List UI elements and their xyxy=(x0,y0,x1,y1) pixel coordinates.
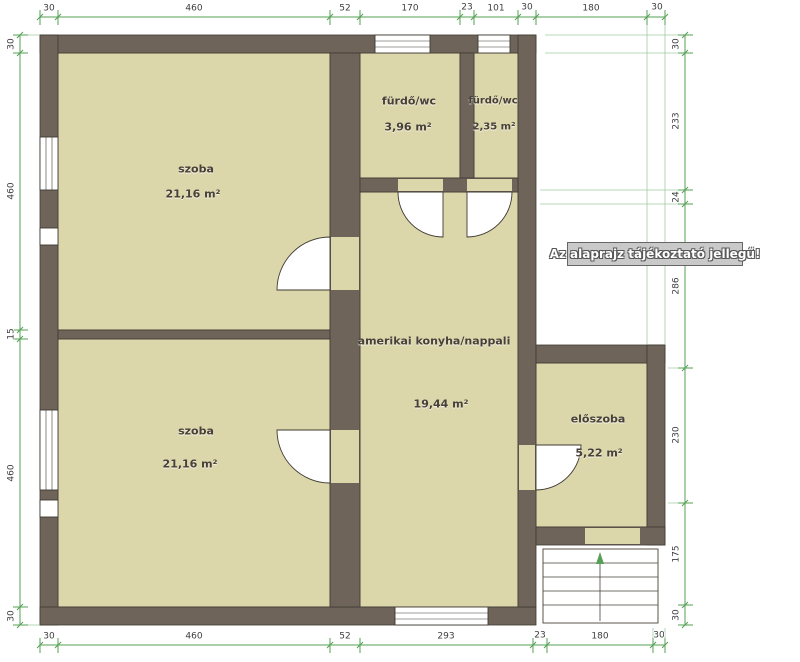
door-gap-furdo-1 xyxy=(398,179,443,191)
door-gap-furdo-2 xyxy=(467,179,512,191)
room-area-eloszoba: 5,22 m² xyxy=(575,447,622,460)
room-area-szoba-1: 21,16 m² xyxy=(166,188,221,201)
entrance-stairs xyxy=(543,549,658,623)
door-gap-szoba-2 xyxy=(331,430,359,483)
dim-label-right-0: 30 xyxy=(673,38,682,49)
dim-label-top-3: 170 xyxy=(401,5,418,14)
room-area-nappali: 19,44 m² xyxy=(414,398,469,411)
room-name-furdo-1: fürdő/wc xyxy=(382,95,436,108)
wall-left xyxy=(40,35,58,625)
wall-right-main xyxy=(518,35,536,607)
floor-furdo-2 xyxy=(474,53,518,178)
wall-ext-right xyxy=(647,345,665,545)
window-top-2 xyxy=(478,35,510,53)
wall-between-szoba xyxy=(58,330,360,339)
disclaimer-note: Az alaprajz tájékoztató jellegű! xyxy=(567,242,743,266)
dim-label-bottom-5: 180 xyxy=(591,633,608,642)
room-name-szoba-2: szoba xyxy=(178,425,214,438)
dim-label-left-0: 30 xyxy=(8,38,17,49)
dim-label-top-1: 460 xyxy=(185,5,202,14)
wall-top xyxy=(40,35,536,53)
door-gap-eloszoba xyxy=(519,445,535,490)
dim-label-right-1: 233 xyxy=(673,112,682,129)
dim-label-top-2: 52 xyxy=(339,5,350,14)
room-area-szoba-2: 21,16 m² xyxy=(163,458,218,471)
wall-szoba-kitchen xyxy=(330,53,360,607)
dim-label-top-8: 30 xyxy=(651,4,662,13)
window-bottom xyxy=(395,607,488,625)
door-gap-entrance xyxy=(585,528,640,544)
wall-niche-left-2 xyxy=(40,500,58,517)
room-name-nappali: amerikai konyha/nappali xyxy=(358,335,511,348)
room-name-furdo-2: fürdő/wc xyxy=(468,96,517,107)
dim-label-left-1: 460 xyxy=(8,182,17,199)
window-left-2 xyxy=(40,410,58,490)
floor-furdo-1 xyxy=(360,53,460,178)
dim-label-bottom-4: 23 xyxy=(534,632,545,641)
dim-label-right-5: 175 xyxy=(673,545,682,562)
dim-label-top-4: 23 xyxy=(461,4,472,13)
dim-label-right-3: 286 xyxy=(673,277,682,294)
dim-label-left-2: 15 xyxy=(8,328,17,339)
dim-label-right-4: 230 xyxy=(673,426,682,443)
dim-label-right-2: 24 xyxy=(673,191,682,202)
dim-label-left-4: 30 xyxy=(8,610,17,621)
room-area-furdo-1: 3,96 m² xyxy=(384,121,431,134)
dim-label-bottom-0: 30 xyxy=(43,633,54,642)
wall-niche-left-1 xyxy=(40,228,58,245)
floorplan-canvas: Az alaprajz tájékoztató jellegű! szoba 2… xyxy=(0,0,800,662)
room-area-furdo-2: 2,35 m² xyxy=(473,122,516,133)
dim-label-top-7: 180 xyxy=(582,5,599,14)
room-name-szoba-1: szoba xyxy=(178,163,214,176)
disclaimer-note-text: Az alaprajz tájékoztató jellegű! xyxy=(550,247,761,261)
dim-label-bottom-6: 30 xyxy=(653,632,664,641)
window-top-1 xyxy=(375,35,430,53)
dim-label-left-3: 460 xyxy=(8,464,17,481)
dim-label-bottom-2: 52 xyxy=(339,633,350,642)
dim-label-right-6: 30 xyxy=(673,609,682,620)
floor-szoba-2 xyxy=(58,339,330,607)
dim-label-top-0: 30 xyxy=(43,5,54,14)
dim-label-bottom-3: 293 xyxy=(437,633,454,642)
window-left-1 xyxy=(40,137,58,190)
wall-ext-top xyxy=(536,345,665,363)
dim-label-top-5: 101 xyxy=(487,5,504,14)
room-name-eloszoba: előszoba xyxy=(571,413,626,426)
dim-label-bottom-1: 460 xyxy=(185,633,202,642)
dim-label-top-6: 30 xyxy=(521,4,532,13)
door-gap-szoba-1 xyxy=(331,237,359,290)
